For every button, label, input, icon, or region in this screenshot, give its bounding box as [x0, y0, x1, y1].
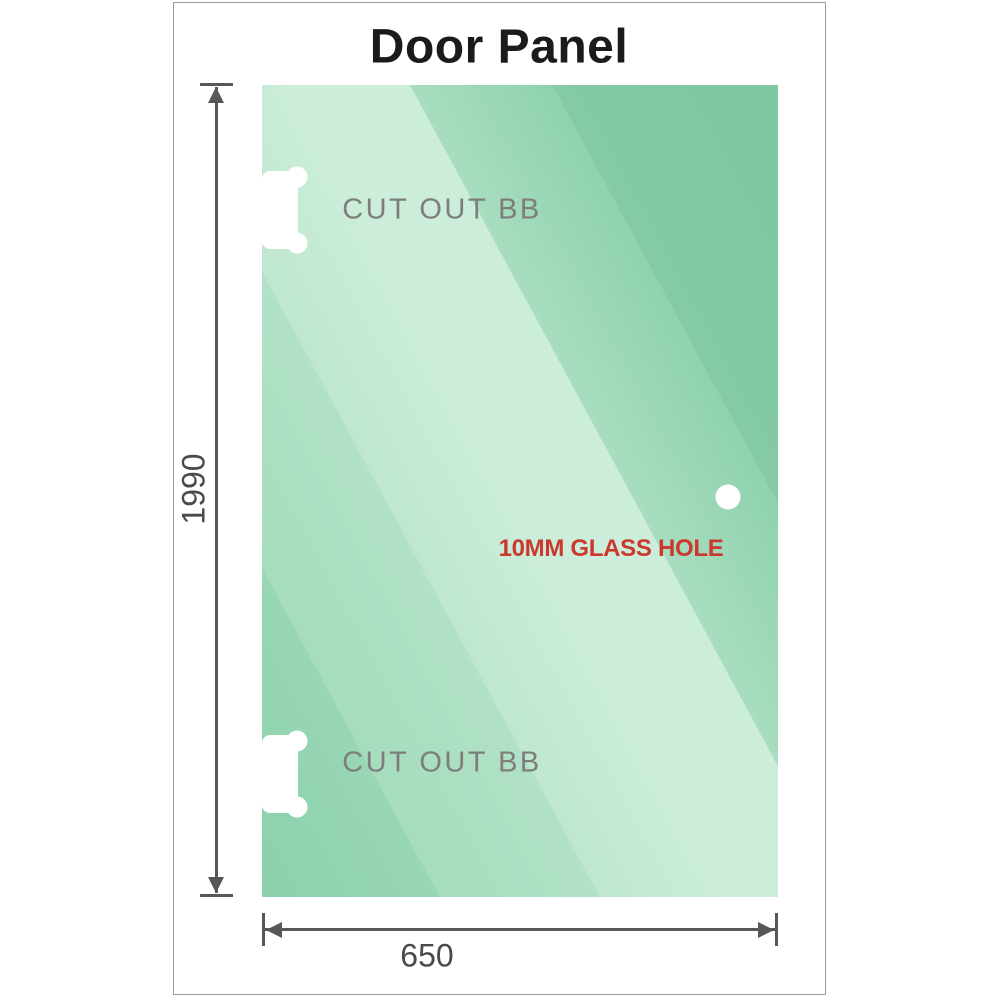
cutout-label-top: CUT OUT BB [342, 194, 542, 227]
width-dim-arrow-left-icon [266, 922, 282, 938]
glass-hole [716, 485, 741, 510]
height-dim-value: 1990 [176, 453, 213, 524]
door-panel-diagram: Door Panel [0, 0, 1000, 1000]
width-dim-value: 650 [400, 938, 453, 975]
width-dim-line [265, 928, 775, 931]
height-dim-cap-bottom [200, 894, 233, 897]
width-dim-cap-right [775, 913, 778, 946]
cutout-label-bottom: CUT OUT BB [342, 747, 542, 780]
height-dim-arrow-down-icon [208, 877, 224, 893]
height-dim-line [215, 87, 218, 893]
height-dim-arrow-up-icon [208, 87, 224, 103]
height-dim-cap-top [200, 83, 233, 86]
diagram-title: Door Panel [370, 20, 628, 75]
width-dim-arrow-right-icon [758, 922, 774, 938]
glass-hole-label: 10MM GLASS HOLE [499, 535, 724, 563]
